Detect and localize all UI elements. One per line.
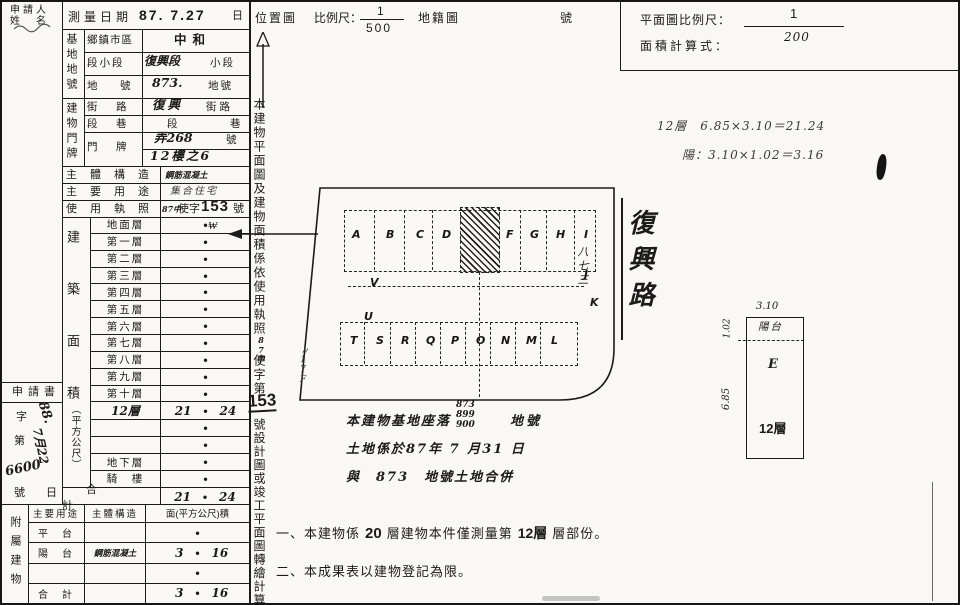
scan-smudge — [542, 596, 600, 601]
street-suffix: 街路 — [206, 102, 233, 113]
floor-label: 12層 — [91, 402, 161, 419]
annex-header-structure: 主體構造 — [85, 504, 146, 522]
district-value: 中和 — [174, 34, 211, 47]
annex-table: 主要用途 主體構造 面(平方公尺)積 平 台 ● 陽 台 鋼筋混凝土 3●16 … — [28, 504, 249, 603]
unit-letter: H — [556, 228, 565, 241]
unit-letter: T — [350, 334, 358, 347]
floor-label: 第四層 — [91, 284, 161, 300]
note-1-text: 一、本建物係 — [276, 527, 360, 540]
floor-area-cell: ● — [161, 386, 250, 402]
plan-scale-numerator: 1 — [790, 7, 797, 20]
floor-label: 第三層 — [91, 268, 161, 284]
table-row: 第八層● — [91, 352, 250, 369]
road-boundary-line — [621, 198, 623, 340]
floor-area-cell: 21●24 — [161, 402, 250, 419]
application-number-block: 申請書 字 第 6600 號 日 88. 7月22 — [2, 382, 62, 504]
unit-letter: C — [416, 228, 424, 241]
check-scribble: ₩ — [208, 220, 217, 231]
calc-line-floor: 12層 6.85×3.10＝21.24 — [657, 120, 825, 132]
note-1: 一、本建物係 20 層建物本件僅測量第 12層 層部份。 — [276, 526, 608, 541]
annex-header-area: 面(平方公尺)積 — [146, 504, 249, 522]
table-row: 第九層● — [91, 369, 250, 386]
unit-letter: A — [352, 228, 361, 241]
annex-area-cell: 3●16 — [146, 543, 249, 562]
unit-letter: S — [376, 334, 384, 347]
ink-blot — [875, 154, 888, 181]
site-note-line1-suffix: 地號 — [510, 415, 542, 428]
total-area-cell: 21●24 — [161, 488, 249, 505]
floor-area-cell: ● — [161, 284, 250, 300]
door-number-floor: 12樓之6 — [150, 150, 211, 163]
site-note-parcel-1: 873 — [456, 401, 475, 410]
floor-area-cell: ● — [161, 251, 250, 267]
note-1-storeys: 20 — [365, 526, 382, 541]
table-row: 陽 台 鋼筋混凝土 3●16 — [28, 543, 249, 563]
site-plan-sketch: A B C D F G H I V J U K T S R Q P O N M … — [292, 180, 627, 410]
section-suffix: 小段 — [210, 58, 235, 69]
application-ri: 日 — [46, 488, 57, 499]
survey-date-day-suffix: 日 — [232, 11, 243, 22]
table-row: ● — [91, 437, 250, 454]
lane-blank-2: 巷 — [230, 119, 241, 130]
north-arrow — [254, 32, 272, 110]
table-row: 第三層● — [91, 268, 250, 285]
table-row: 合 計 3●16 — [28, 584, 249, 603]
floor-label — [91, 437, 161, 453]
unit-letter: D — [442, 228, 451, 241]
detail-balcony-divider — [738, 340, 804, 341]
license-number: 153 — [201, 199, 229, 214]
detail-dim-side: 6.85 — [722, 388, 732, 410]
table-row: 第一層● — [91, 234, 250, 251]
strip-text-3: 號設計圖或竣工平面圖轉繪計算 — [253, 418, 265, 605]
plan-scale-fraction-bar — [744, 26, 844, 27]
annex-use: 平 台 — [28, 523, 85, 542]
floor-area-cell: ● — [161, 301, 250, 317]
unit-letter: L — [551, 334, 558, 347]
note-1-text: 層部份。 — [552, 527, 608, 540]
floor-label: 第十層 — [91, 386, 161, 402]
door-number-alley-suffix: 號 — [226, 135, 237, 146]
table-row: 平 台 ● — [28, 523, 249, 543]
fold-mark — [932, 482, 933, 601]
table-row: ● — [28, 564, 249, 584]
note-1-text: 層建物本件僅測量第 — [387, 527, 513, 540]
floor-area-cell: ● — [161, 268, 250, 284]
district-label: 鄉鎮市區 — [87, 35, 133, 46]
floor-area-cell: ● — [161, 369, 250, 385]
lane-label: 段 巷 — [87, 119, 131, 130]
leader-arrow — [228, 226, 320, 242]
area-formula-label: 面積計算式： — [640, 40, 730, 52]
lane-blank-1: 段 — [167, 119, 178, 130]
floor-area-cell: ● — [161, 437, 250, 453]
street-label: 街 路 — [87, 102, 131, 113]
scale-label: 比例尺： — [314, 12, 362, 24]
unit-letter: O — [476, 334, 485, 347]
surveyed-unit-hatch — [460, 207, 500, 273]
floor-label: 地下層 — [91, 454, 161, 470]
annex-structure: 鋼筋混凝土 — [85, 543, 146, 562]
note-1-floor: 12層 — [518, 526, 548, 540]
license-word: 使字 — [178, 204, 200, 215]
floor-area-cell: ● — [161, 352, 250, 368]
scale-numerator: 1 — [377, 5, 384, 17]
floor-area-cell: ● — [161, 335, 250, 351]
site-note-line3: 與 873 地號土地合併 — [346, 471, 514, 484]
margin-scribble: 〃17F — [298, 346, 307, 385]
unit-letter: K — [590, 296, 599, 309]
floor-label: 第八層 — [91, 352, 161, 368]
annex-structure — [85, 523, 146, 542]
unit-letter: F — [506, 228, 514, 241]
detail-balcony-label: 陽台 — [758, 322, 783, 333]
floor-area-table: 地面層● 第一層● 第二層● 第三層● 第四層● 第五層● 第六層● 第七層● … — [90, 217, 250, 487]
site-note-parcel-2: 899 — [456, 411, 475, 420]
unit-letter: R — [401, 334, 409, 347]
floor-label: 地面層 — [91, 217, 161, 233]
road-name: 復興路 — [626, 209, 652, 317]
application-di: 第 — [14, 436, 25, 447]
applicant-signature-scribble — [12, 21, 54, 33]
unit-letter: Q — [426, 334, 435, 347]
unit-letter: B — [386, 228, 394, 241]
door-number-label: 門 牌 — [87, 142, 131, 153]
annex-structure — [85, 564, 146, 583]
application-title: 申請書 — [12, 387, 60, 398]
table-row: 第六層● — [91, 318, 250, 335]
detail-dim-upper: 1.02 — [724, 318, 733, 338]
scale-fraction-bar — [360, 19, 404, 20]
location-map-label: 位置圖 — [255, 12, 297, 24]
detail-unit-letter: E — [768, 358, 778, 371]
building-area-unit-label: （平方公尺） — [69, 404, 79, 470]
scale-denominator: 500 — [366, 22, 392, 34]
annex-use — [28, 564, 85, 583]
annex-use: 陽 台 — [28, 543, 85, 562]
parcel-number-value: 873. — [152, 77, 182, 90]
annex-header-use: 主要用途 — [28, 504, 85, 522]
license-label: 使用執照 — [66, 204, 162, 215]
annex-header-row: 主要用途 主體構造 面(平方公尺)積 — [28, 504, 249, 523]
strip-text-1: 本建物平面圖及建物面積係依使用執照 — [253, 98, 265, 336]
site-note-line2: 土地係於87年 7 月31 日 — [346, 443, 526, 456]
table-row: 第二層● — [91, 251, 250, 268]
annex-group-label-cell: 附屬建物 — [2, 504, 29, 603]
floor-label: 第九層 — [91, 369, 161, 385]
annex-structure — [85, 584, 146, 603]
section-label: 段小段 — [87, 58, 125, 69]
table-row: 12層21●24 — [91, 402, 250, 420]
usage-value: 集合住宅 — [170, 187, 218, 197]
annex-group-label: 附屬建物 — [7, 516, 23, 592]
parcel-number-suffix: 地號 — [208, 81, 233, 92]
door-number-alley: 弄268 — [154, 132, 193, 145]
unit-letter: V — [370, 276, 379, 289]
parcel-number-annotation: 八七三 — [577, 246, 588, 288]
street-value: 復興 — [152, 99, 183, 112]
detail-dim-top: 3.10 — [756, 302, 778, 312]
annex-area-cell: 3●16 — [146, 584, 249, 603]
floor-area-cell: ● — [161, 318, 250, 334]
structure-value: 鋼筋混凝土 — [165, 172, 208, 181]
floor-label: 第一層 — [91, 234, 161, 250]
table-row: 第四層● — [91, 284, 250, 301]
floor-area-cell: ● — [161, 454, 250, 470]
application-date-year: 88. — [36, 400, 55, 426]
floor-label: 第六層 — [91, 318, 161, 334]
usage-label: 主要用途 — [66, 187, 162, 198]
survey-date-label: 測量日期 — [68, 11, 132, 23]
annex-area-cell: ● — [146, 564, 249, 583]
plan-scale-label: 平面圖比例尺： — [640, 14, 731, 26]
unit-letter: I — [584, 228, 588, 241]
table-row: 第七層● — [91, 335, 250, 352]
parcel-number-label: 地 號 — [87, 81, 137, 92]
structure-label: 主體構造 — [66, 170, 162, 181]
floor-total-row: 合 計 21●24 — [62, 487, 249, 505]
unit-letter: G — [530, 228, 539, 241]
survey-form-document: 申請人 姓 名 測量日期 87. 7.27 日 基地地號 鄉鎮市區 中和 段小段… — [0, 0, 960, 605]
note-2: 二、本成果表以建物登記為限。 — [276, 565, 472, 578]
cadastral-no-suffix: 號 — [560, 12, 572, 24]
floor-label: 第二層 — [91, 251, 161, 267]
strip-text-2: 使字第 — [253, 354, 265, 396]
total-label: 合 計 — [62, 488, 161, 505]
floor-label: 第七層 — [91, 335, 161, 351]
site-note-line1: 本建物基地座落 — [346, 415, 451, 428]
floor-label: 第五層 — [91, 301, 161, 317]
applicant-label: 申請人 — [10, 6, 49, 16]
unit-letter: M — [526, 334, 537, 347]
detail-floor-label: 12層 — [759, 422, 786, 435]
table-row: 地下層● — [91, 454, 250, 471]
unit-letter: N — [501, 334, 510, 347]
plan-scale-denominator: 200 — [784, 31, 810, 43]
section-value: 復興段 — [144, 55, 180, 67]
cadastral-map-label: 地籍圖 — [418, 12, 460, 24]
annex-area-cell: ● — [146, 523, 249, 542]
application-hao: 號 — [14, 488, 25, 499]
floor-label — [91, 420, 161, 436]
table-row: 第五層● — [91, 301, 250, 318]
site-group-label: 基地地號 — [65, 33, 76, 93]
floor-area-cell: ● — [161, 471, 250, 487]
site-note-parcel-3: 900 — [456, 421, 475, 430]
strip-license-number: 153 — [247, 391, 276, 412]
annex-use: 合 計 — [28, 584, 85, 603]
table-row: ● — [91, 420, 250, 437]
detail-unit-outline — [746, 317, 804, 459]
unit-letter: P — [451, 334, 459, 347]
survey-date-value: 87. 7.27 — [139, 8, 206, 22]
floor-area-cell: ● — [161, 420, 250, 436]
calc-line-balcony: 陽：3.10×1.02＝3.16 — [682, 149, 824, 161]
address-group-label: 建物門牌 — [65, 102, 76, 162]
license-suffix: 號 — [233, 204, 244, 215]
table-row: 地面層● — [91, 217, 250, 234]
table-row: 第十層● — [91, 386, 250, 403]
application-zi: 字 — [16, 412, 27, 423]
